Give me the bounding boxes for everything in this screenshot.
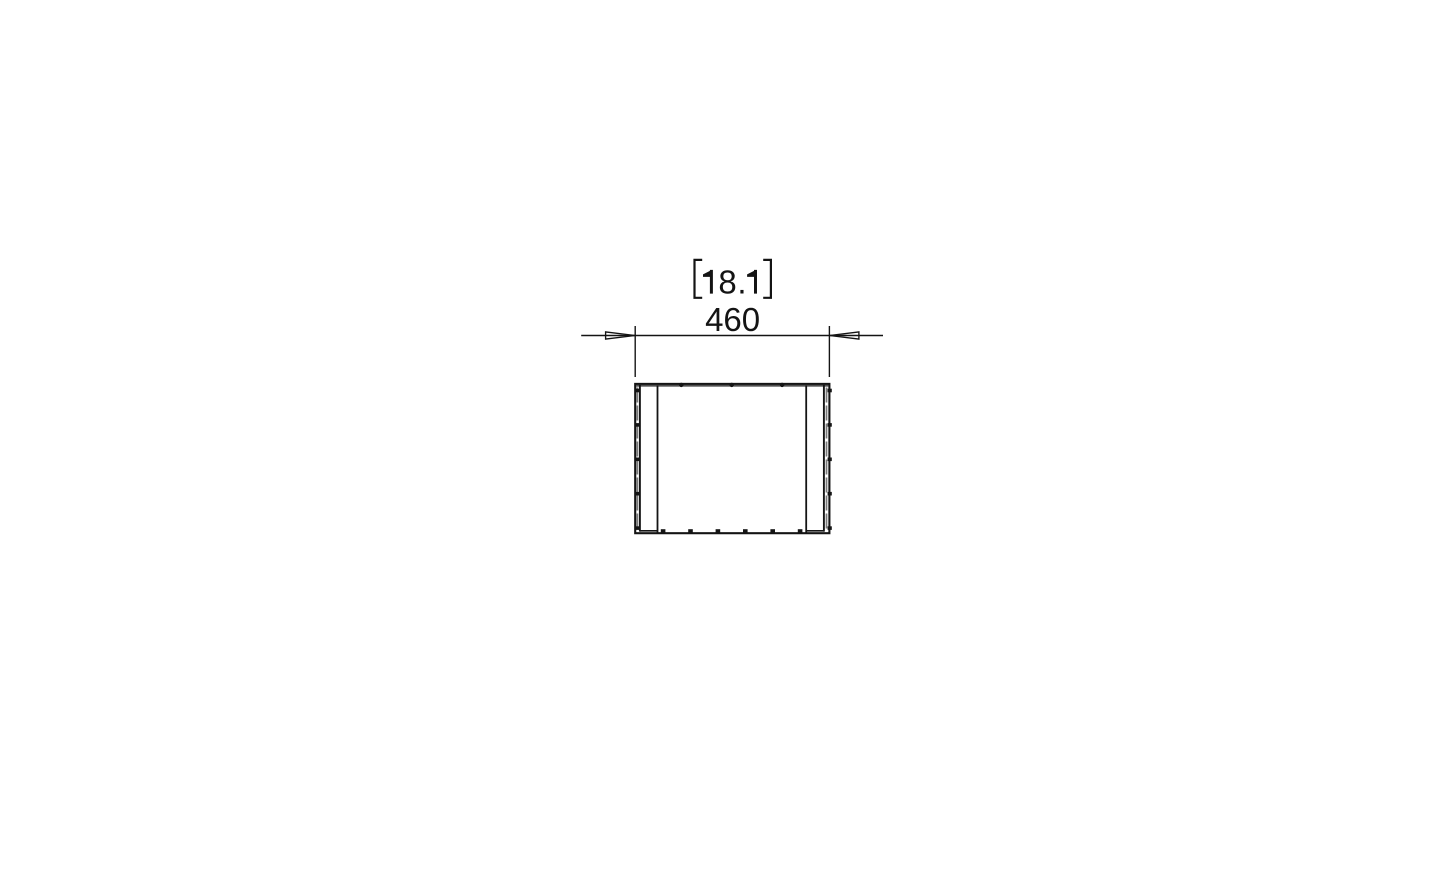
svg-text:8: 8	[718, 264, 736, 301]
svg-text:460: 460	[705, 301, 760, 338]
svg-text:.: .	[737, 264, 746, 301]
